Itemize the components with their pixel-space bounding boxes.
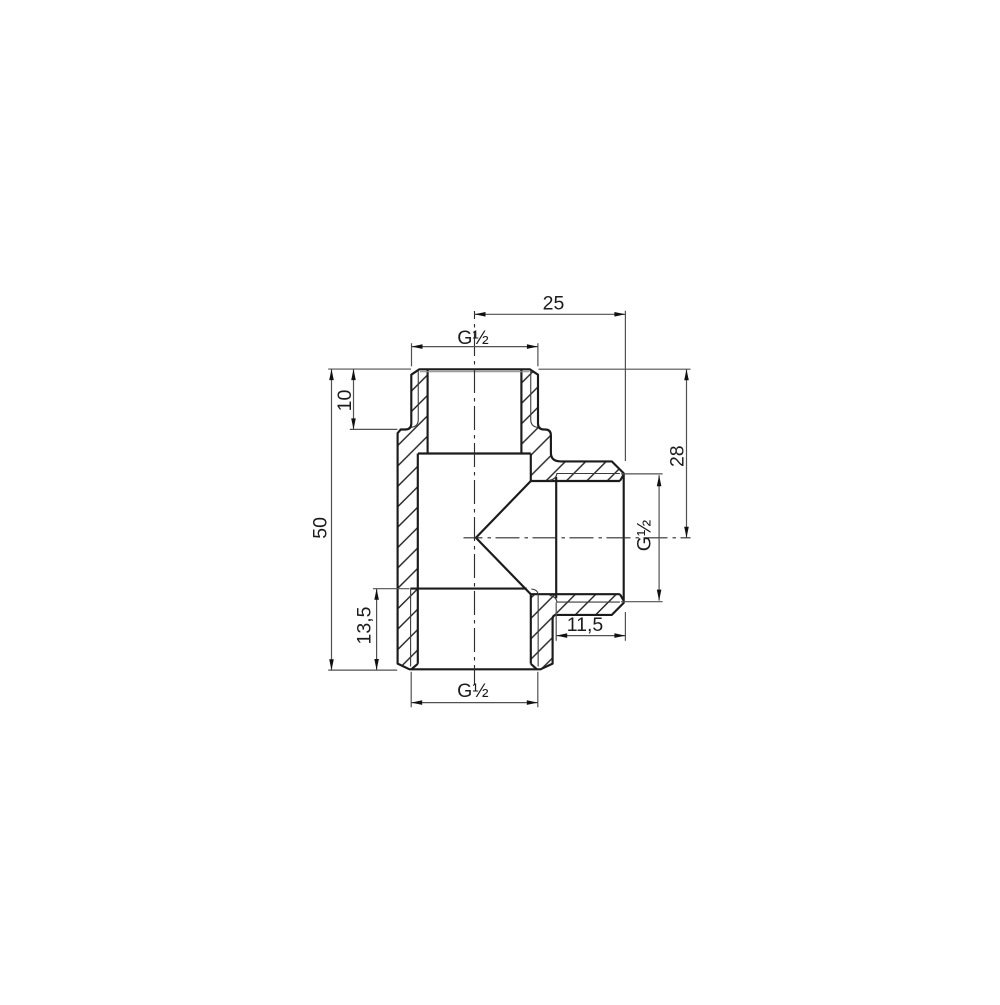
svg-text:13,5: 13,5 (354, 606, 376, 644)
svg-text:G½: G½ (634, 520, 656, 551)
svg-text:10: 10 (334, 390, 356, 412)
svg-text:G½: G½ (457, 680, 488, 702)
svg-text:G½: G½ (457, 327, 488, 349)
svg-text:25: 25 (543, 292, 565, 314)
svg-text:28: 28 (666, 445, 688, 467)
svg-text:11,5: 11,5 (567, 614, 604, 636)
svg-text:50: 50 (310, 517, 332, 539)
